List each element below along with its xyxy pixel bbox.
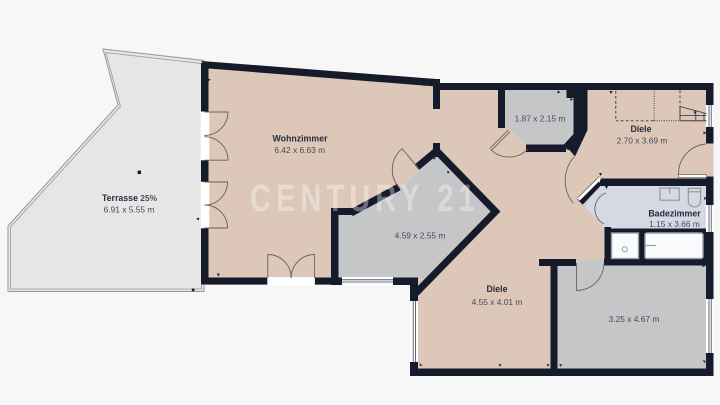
svg-text:Badezimmer: Badezimmer	[648, 209, 701, 219]
svg-text:4.59 x 2.55 m: 4.59 x 2.55 m	[395, 231, 446, 241]
svg-text:1.87 x 2.15 m: 1.87 x 2.15 m	[515, 114, 566, 124]
svg-text:6.42 x 6.63 m: 6.42 x 6.63 m	[274, 145, 325, 155]
svg-text:Terrasse 25%: Terrasse 25%	[102, 193, 158, 203]
svg-text:4.55 x 4.01 m: 4.55 x 4.01 m	[472, 297, 523, 307]
svg-text:2.70 x 3.69 m: 2.70 x 3.69 m	[617, 136, 668, 146]
svg-text:Diele: Diele	[630, 124, 651, 134]
svg-text:6.91 x 5.55 m: 6.91 x 5.55 m	[104, 205, 155, 215]
svg-text:Wohnzimmer: Wohnzimmer	[272, 134, 328, 144]
svg-text:Diele: Diele	[486, 284, 507, 294]
svg-text:3.25 x 4.67 m: 3.25 x 4.67 m	[609, 314, 660, 324]
svg-text:1.15 x 3.66 m: 1.15 x 3.66 m	[649, 219, 700, 229]
svg-text:CENTURY 21: CENTURY 21	[250, 178, 480, 220]
